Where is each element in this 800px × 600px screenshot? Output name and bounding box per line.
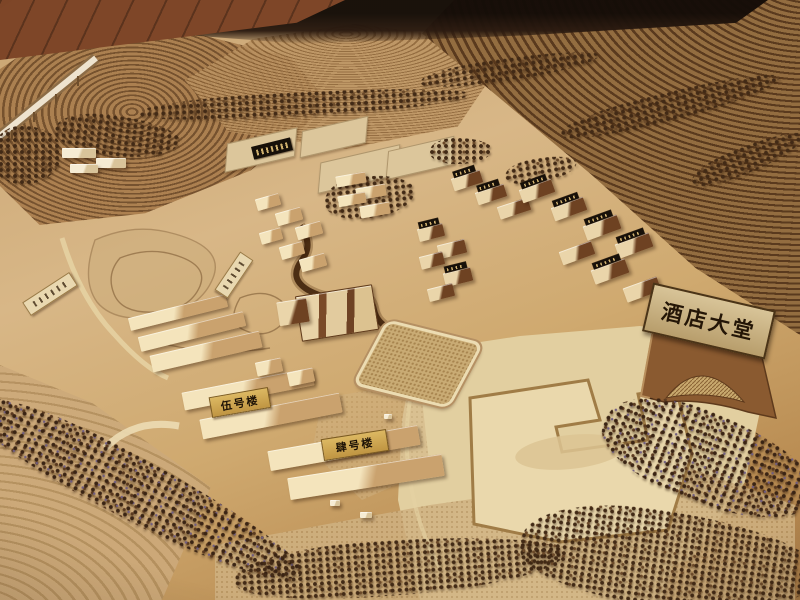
building-5-plaque-text: 伍号楼 (219, 391, 260, 414)
gate-sign-text: 酒店大堂 (659, 296, 759, 347)
model-photo: 酒店大堂 伍号楼 肆号楼 (0, 0, 800, 600)
white-building (70, 164, 98, 173)
building-4-plaque-text: 肆号楼 (334, 434, 375, 456)
white-building (96, 158, 126, 168)
model-prop (384, 414, 392, 419)
model-prop (330, 500, 340, 506)
model-prop (360, 512, 372, 518)
white-building (62, 148, 96, 158)
central-hall-annex (276, 298, 309, 326)
